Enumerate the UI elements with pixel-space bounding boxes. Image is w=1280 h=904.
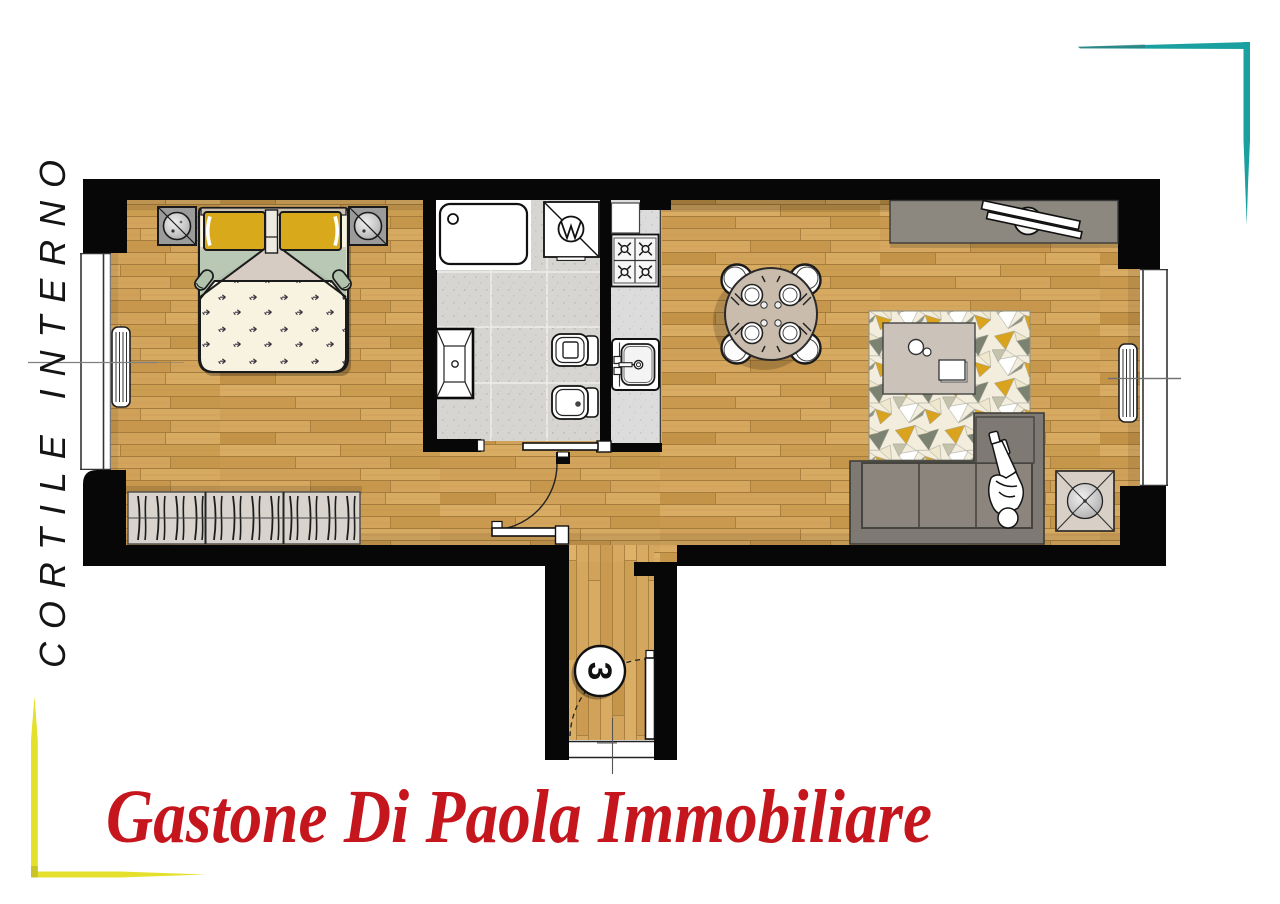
svg-text:3: 3 <box>582 662 619 680</box>
svg-text:Gastone Di Paola Immobiliare: Gastone Di Paola Immobiliare <box>106 775 932 859</box>
